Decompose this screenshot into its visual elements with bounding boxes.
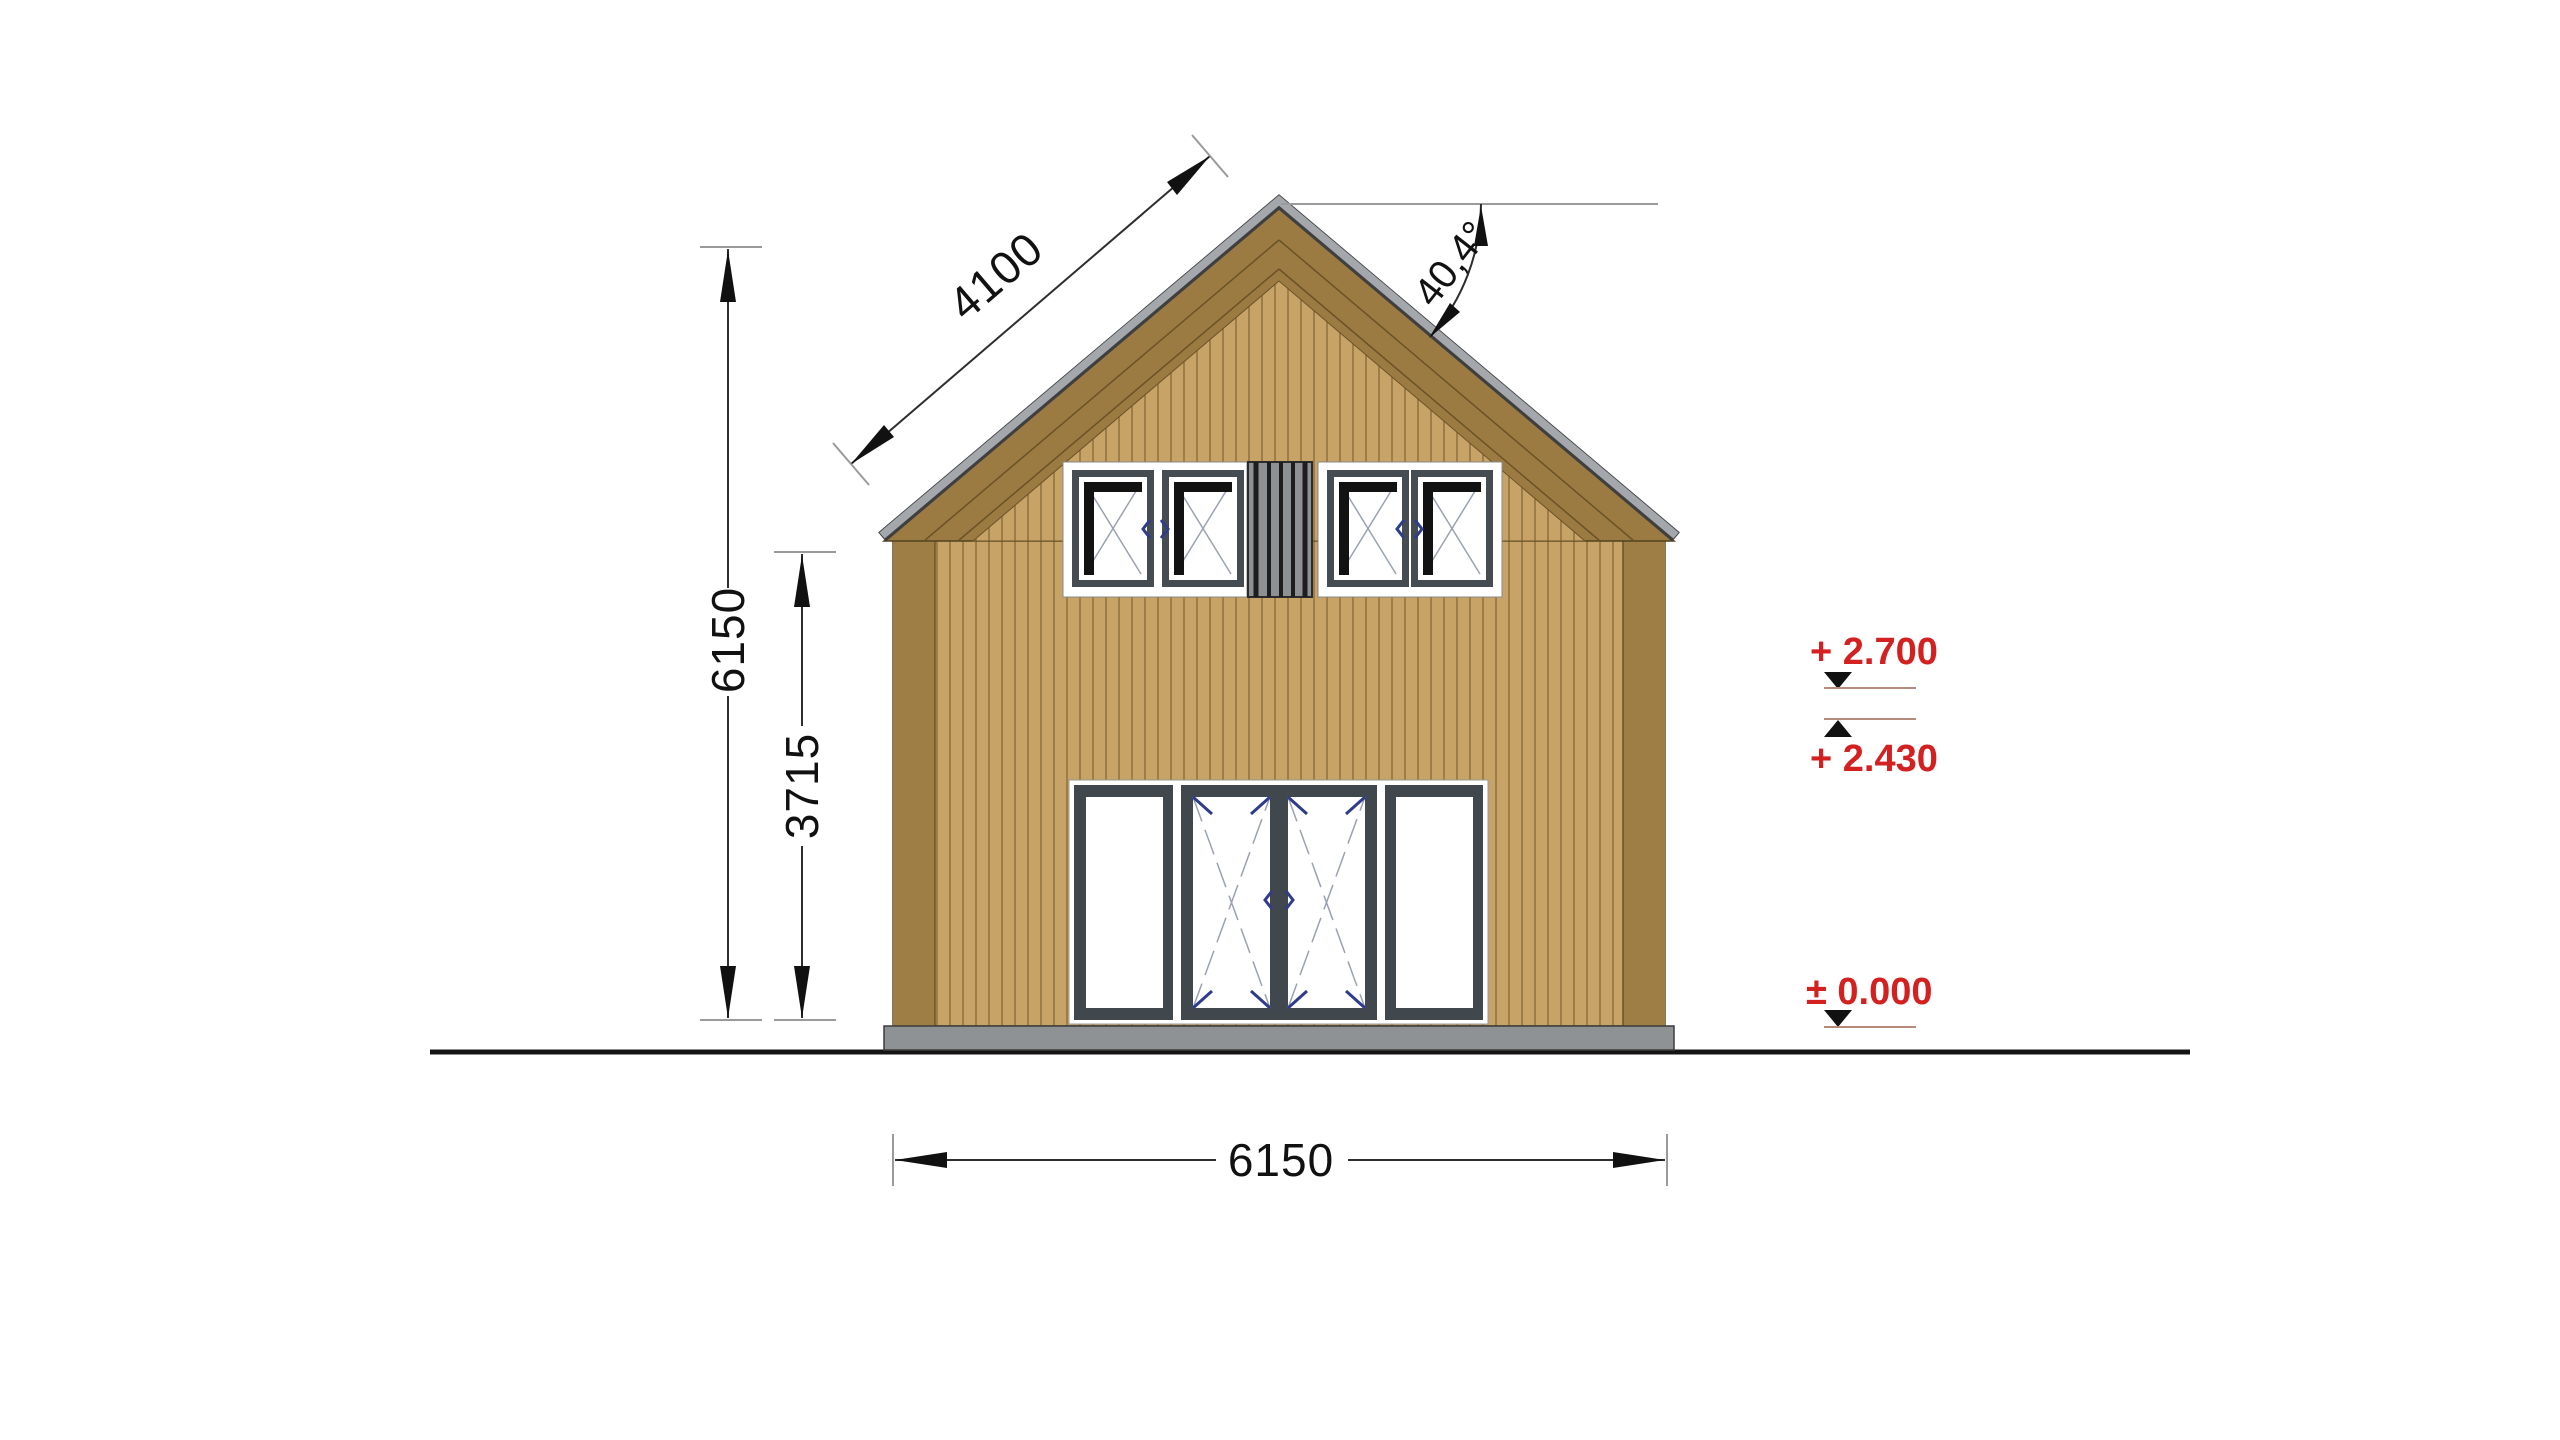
level-ground: ± 0.000: [1806, 971, 1933, 1027]
level-eave: + 2.430: [1810, 719, 1938, 780]
level-eave-label: + 2.430: [1810, 738, 1938, 780]
door-leaf-left: [1193, 797, 1270, 1008]
upper-windows: [1063, 462, 1502, 597]
level-marker-triangle: [1824, 1010, 1852, 1027]
corner-board-right: [1623, 541, 1665, 1026]
level-ground-label: ± 0.000: [1806, 971, 1933, 1013]
door-leaf-right: [1288, 797, 1365, 1008]
level-ridge: + 2.700: [1810, 631, 1938, 689]
upper-window-2: [1162, 470, 1244, 587]
dimension-total-height: 6150: [700, 247, 762, 1020]
level-ridge-label: + 2.700: [1810, 631, 1938, 673]
dim-wall-height-label: 3715: [776, 733, 828, 839]
elevation-svg: 4100 6150 3715 6150 40,4°: [0, 0, 2560, 1440]
level-marker-triangle: [1824, 720, 1852, 737]
elevation-drawing: 4100 6150 3715 6150 40,4°: [0, 0, 2560, 1440]
level-marker-triangle: [1824, 672, 1852, 689]
door-section-gap: [1173, 782, 1181, 1023]
center-louver-strip: [1248, 462, 1312, 597]
dimension-width: 6150: [893, 1134, 1667, 1186]
foundation: [884, 1026, 1674, 1050]
fixed-panel-left-glass: [1086, 797, 1163, 1008]
dim-total-height-label: 6150: [702, 587, 754, 693]
dim-roof-slope-label: 4100: [938, 222, 1053, 331]
door-section-gap: [1377, 782, 1385, 1023]
level-markers: + 2.700 + 2.430 ± 0.000: [1806, 631, 1938, 1027]
fixed-panel-right-glass: [1396, 797, 1473, 1008]
corner-board-left: [893, 541, 935, 1026]
dim-width-label: 6150: [1228, 1134, 1334, 1186]
patio-doors: [1069, 780, 1488, 1024]
dimension-wall-height: 3715: [774, 552, 836, 1020]
house: [882, 201, 1676, 1051]
